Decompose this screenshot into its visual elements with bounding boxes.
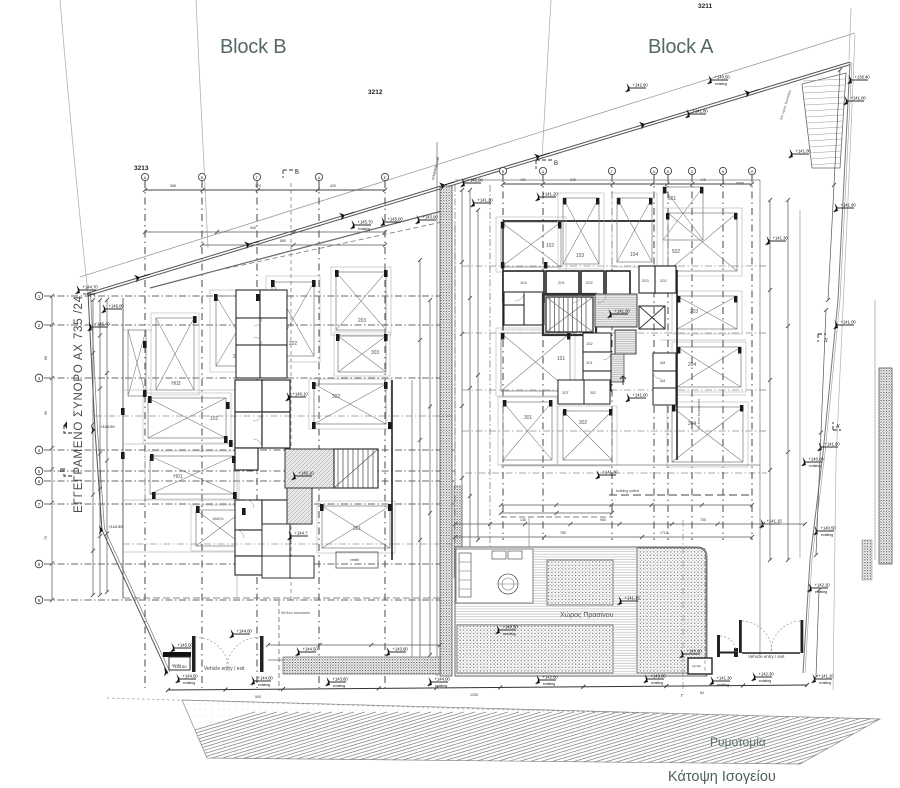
- svg-text:101: 101: [586, 360, 593, 365]
- svg-text:AM: AM: [660, 361, 665, 365]
- svg-text:3212: 3212: [368, 89, 383, 96]
- svg-text:A': A': [836, 424, 840, 430]
- svg-text:Vehicle entry / exit: Vehicle entry / exit: [204, 666, 245, 672]
- svg-text:104: 104: [520, 280, 527, 285]
- svg-text:+141.00: +141.00: [841, 320, 857, 325]
- svg-text:AM: AM: [660, 379, 665, 383]
- svg-text:+141.80: +141.80: [825, 442, 841, 447]
- svg-text:5m from boundaries: 5m from boundaries: [697, 399, 701, 430]
- svg-text:+141.00: +141.00: [633, 393, 649, 398]
- svg-text:Vehicle entry / exit: Vehicle entry / exit: [748, 654, 785, 659]
- svg-text:+140.50: +140.50: [715, 75, 731, 80]
- svg-text:existing: existing: [333, 684, 345, 688]
- svg-text:940: 940: [250, 226, 256, 230]
- svg-text:+146.00: +146.00: [109, 304, 125, 309]
- svg-text:780: 780: [560, 531, 566, 535]
- svg-text:202: 202: [586, 280, 593, 285]
- svg-text:+141.20: +141.20: [819, 674, 835, 679]
- svg-text:handle: handle: [692, 664, 701, 668]
- svg-text:existing: existing: [715, 82, 727, 86]
- svg-text:303: 303: [371, 350, 380, 356]
- svg-text:Block A: Block A: [648, 36, 714, 58]
- svg-text:Θ: Θ: [751, 170, 754, 174]
- svg-text:Η01: Η01: [173, 474, 182, 480]
- svg-text:Γ: Γ: [611, 170, 613, 174]
- svg-text:+140.50: +140.50: [503, 625, 519, 630]
- svg-text:+140.50: +140.50: [821, 526, 837, 531]
- svg-text:+140.00: +140.00: [809, 457, 825, 462]
- svg-text:+141.30: +141.30: [478, 198, 494, 203]
- svg-text:70: 70: [44, 536, 48, 540]
- svg-text:203: 203: [642, 278, 649, 283]
- svg-text:101: 101: [557, 356, 566, 362]
- svg-text:+145.40: +145.40: [95, 322, 111, 327]
- svg-text:202: 202: [660, 278, 667, 283]
- svg-text:Η: Η: [722, 170, 725, 174]
- svg-text:existing: existing: [717, 683, 729, 687]
- svg-text:+142.90: +142.90: [633, 83, 649, 88]
- svg-text:502: 502: [672, 249, 681, 255]
- svg-text:+141.30: +141.30: [717, 676, 733, 681]
- svg-text:+140.90: +140.90: [687, 649, 703, 654]
- svg-text:existing: existing: [435, 684, 447, 688]
- svg-text:+141.80: +141.80: [693, 109, 709, 114]
- svg-text:existing: existing: [258, 683, 270, 687]
- svg-text:+141.30: +141.30: [615, 309, 631, 314]
- svg-text:+143.60: +143.60: [333, 677, 349, 682]
- svg-text:3211: 3211: [698, 3, 712, 10]
- svg-text:204: 204: [688, 362, 697, 368]
- svg-text:302: 302: [579, 420, 588, 426]
- svg-text:Η03: Η03: [171, 381, 180, 387]
- svg-text:301: 301: [524, 415, 533, 421]
- svg-text:vestib: vestib: [350, 558, 359, 562]
- svg-text:+141.30: +141.30: [773, 236, 789, 241]
- svg-text:+142.20: +142.20: [815, 583, 831, 588]
- svg-text:3213: 3213: [134, 165, 149, 172]
- svg-text:+145.70: +145.70: [358, 220, 374, 225]
- svg-text:existing: existing: [759, 679, 771, 683]
- svg-text:+142.00: +142.00: [468, 178, 484, 183]
- svg-text:960: 960: [600, 518, 606, 522]
- svg-text:860: 860: [280, 239, 286, 243]
- svg-text:B: B: [295, 170, 299, 176]
- svg-text:+144.50: +144.50: [183, 674, 199, 679]
- svg-text:existing: existing: [651, 681, 663, 685]
- svg-text:Ρυμοτομία: Ρυμοτομία: [710, 735, 766, 749]
- svg-text:ΑΜΕΑ: ΑΜΕΑ: [212, 516, 224, 521]
- svg-text:88: 88: [44, 356, 48, 360]
- svg-text:+144.00: +144.00: [435, 677, 451, 682]
- svg-text:+143.90: +143.90: [100, 424, 115, 429]
- svg-text:304: 304: [688, 421, 697, 427]
- svg-text:201: 201: [558, 280, 565, 285]
- svg-text:+145.00: +145.00: [388, 217, 404, 222]
- svg-text:+143.80: +143.80: [393, 647, 409, 652]
- svg-text:+144.70: +144.70: [83, 285, 99, 290]
- svg-text:302: 302: [332, 394, 341, 400]
- svg-text:+141.90: +141.90: [841, 203, 857, 208]
- svg-text:+136.40: +136.40: [855, 75, 871, 80]
- svg-text:+141.00: +141.00: [796, 149, 812, 154]
- svg-text:existing: existing: [543, 682, 555, 686]
- svg-text:+144.00: +144.00: [237, 629, 253, 634]
- svg-text:+142.50: +142.50: [543, 675, 559, 680]
- svg-text:existing: existing: [83, 292, 95, 296]
- svg-text:420: 420: [330, 184, 336, 188]
- svg-text:Γ: Γ: [256, 176, 258, 180]
- svg-text:202: 202: [289, 341, 298, 347]
- svg-text:+143.00: +143.00: [651, 674, 667, 679]
- svg-text:140: 140: [520, 518, 526, 522]
- svg-text:ΕΓΓΕΓΡΑΜΕΝΟ ΣΥΝΟΡΟ ΑΧ 735 /24: ΕΓΓΕΓΡΑΜΕΝΟ ΣΥΝΟΡΟ ΑΧ 735 /24: [73, 295, 85, 513]
- svg-text:+141.30: +141.30: [603, 470, 619, 475]
- svg-text:203: 203: [358, 318, 367, 324]
- svg-text:+143.50: +143.50: [108, 524, 123, 529]
- svg-text:103: 103: [576, 253, 585, 259]
- svg-text:102: 102: [210, 416, 219, 422]
- svg-text:building outline: building outline: [616, 489, 639, 493]
- svg-text:+144.?: +144.?: [295, 531, 309, 536]
- svg-text:+141.15: +141.15: [625, 596, 641, 601]
- svg-text:Χώρος Πρασίνου: Χώρος Πρασίνου: [560, 611, 614, 619]
- svg-text:+141.15: +141.15: [767, 519, 783, 524]
- svg-text:existing: existing: [821, 533, 833, 537]
- svg-text:+142.30: +142.30: [759, 672, 775, 677]
- svg-text:+145.00: +145.00: [178, 643, 194, 648]
- svg-text:203: 203: [690, 309, 699, 315]
- svg-text:existing: existing: [358, 227, 370, 231]
- svg-text:104: 104: [630, 252, 639, 258]
- svg-text:3ΟΤ: 3ΟΤ: [562, 391, 570, 395]
- svg-text:Κάτοψη Ισογείου: Κάτοψη Ισογείου: [668, 769, 776, 785]
- svg-text:existing: existing: [183, 681, 195, 685]
- svg-text:84: 84: [700, 691, 704, 695]
- svg-text:301: 301: [353, 526, 362, 532]
- svg-text:existing: existing: [819, 681, 831, 685]
- svg-text:1710: 1710: [660, 531, 668, 535]
- svg-text:730: 730: [700, 518, 706, 522]
- svg-text:5th floor boundaries: 5th floor boundaries: [281, 611, 310, 615]
- svg-text:Block B: Block B: [220, 36, 286, 58]
- svg-text:+146.10: +146.10: [293, 392, 309, 397]
- svg-text:95: 95: [44, 411, 48, 415]
- svg-text:302: 302: [590, 391, 596, 395]
- svg-text:368: 368: [170, 184, 176, 188]
- svg-text:+143.00: +143.00: [423, 215, 439, 220]
- svg-text:102: 102: [586, 341, 593, 346]
- svg-text:102: 102: [546, 243, 555, 249]
- svg-text:handle: handle: [172, 663, 181, 667]
- svg-text:900: 900: [255, 695, 261, 699]
- svg-text:B: B: [554, 161, 558, 167]
- svg-text:+144.50: +144.50: [303, 647, 319, 652]
- svg-text:1235: 1235: [470, 693, 478, 697]
- svg-text:+141.00: +141.00: [851, 96, 867, 101]
- svg-text:seeding: seeding: [503, 632, 516, 636]
- svg-text:+144.00: +144.00: [258, 676, 274, 681]
- svg-text:+141.20: +141.20: [543, 192, 559, 197]
- svg-text:370: 370: [255, 184, 261, 188]
- svg-text:+145.10: +145.10: [299, 471, 315, 476]
- svg-text:existing: existing: [815, 590, 827, 594]
- svg-text:501: 501: [668, 196, 677, 202]
